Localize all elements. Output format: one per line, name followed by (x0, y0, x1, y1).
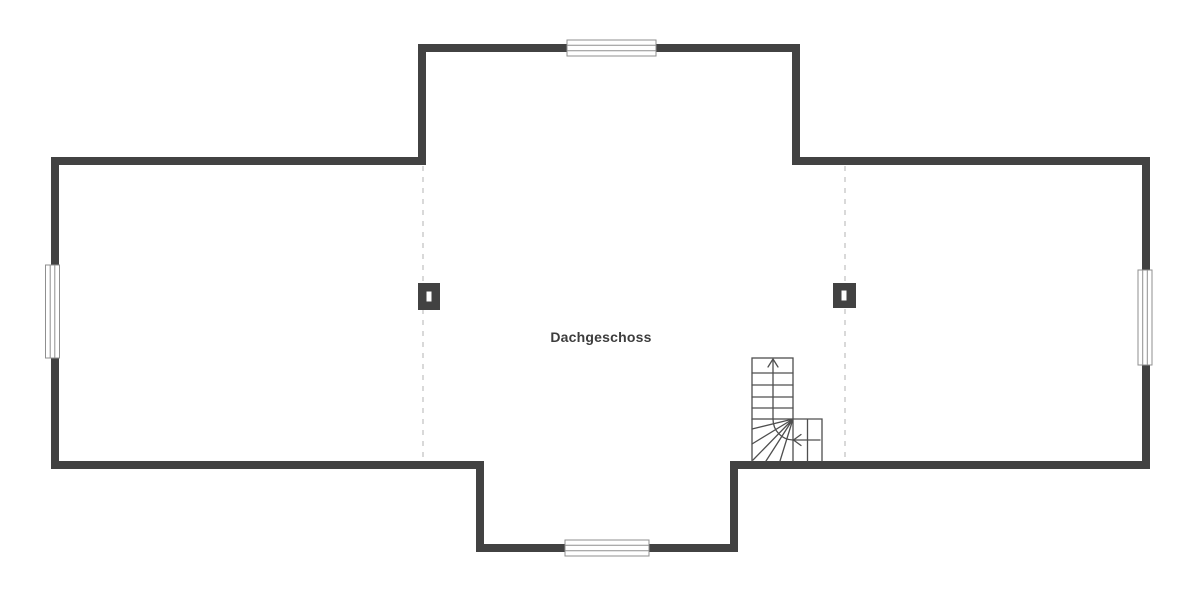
wall-outline (51, 44, 1150, 552)
window-symbol-east (1138, 270, 1152, 365)
floor-plan-canvas: Dachgeschoss (0, 0, 1200, 600)
chimney-symbol-left (418, 283, 440, 310)
exterior-walls (51, 44, 1150, 552)
window-west-frame (46, 265, 60, 358)
window-south-frame (565, 540, 649, 556)
floor-label: Dachgeschoss (451, 327, 751, 347)
window-symbol-south (565, 540, 649, 556)
window-symbol-west (46, 265, 60, 358)
chimney-right-flue (842, 291, 847, 301)
window-north-frame (567, 40, 656, 56)
chimney-left-flue (427, 292, 432, 302)
stair-winder-treads (752, 419, 793, 461)
staircase-symbol (752, 358, 822, 461)
window-symbol-north (567, 40, 656, 56)
floor-plan-drawing (0, 0, 1200, 600)
window-east-frame (1138, 270, 1152, 365)
chimney-symbol-right (833, 283, 856, 308)
section-dividers (423, 166, 845, 460)
